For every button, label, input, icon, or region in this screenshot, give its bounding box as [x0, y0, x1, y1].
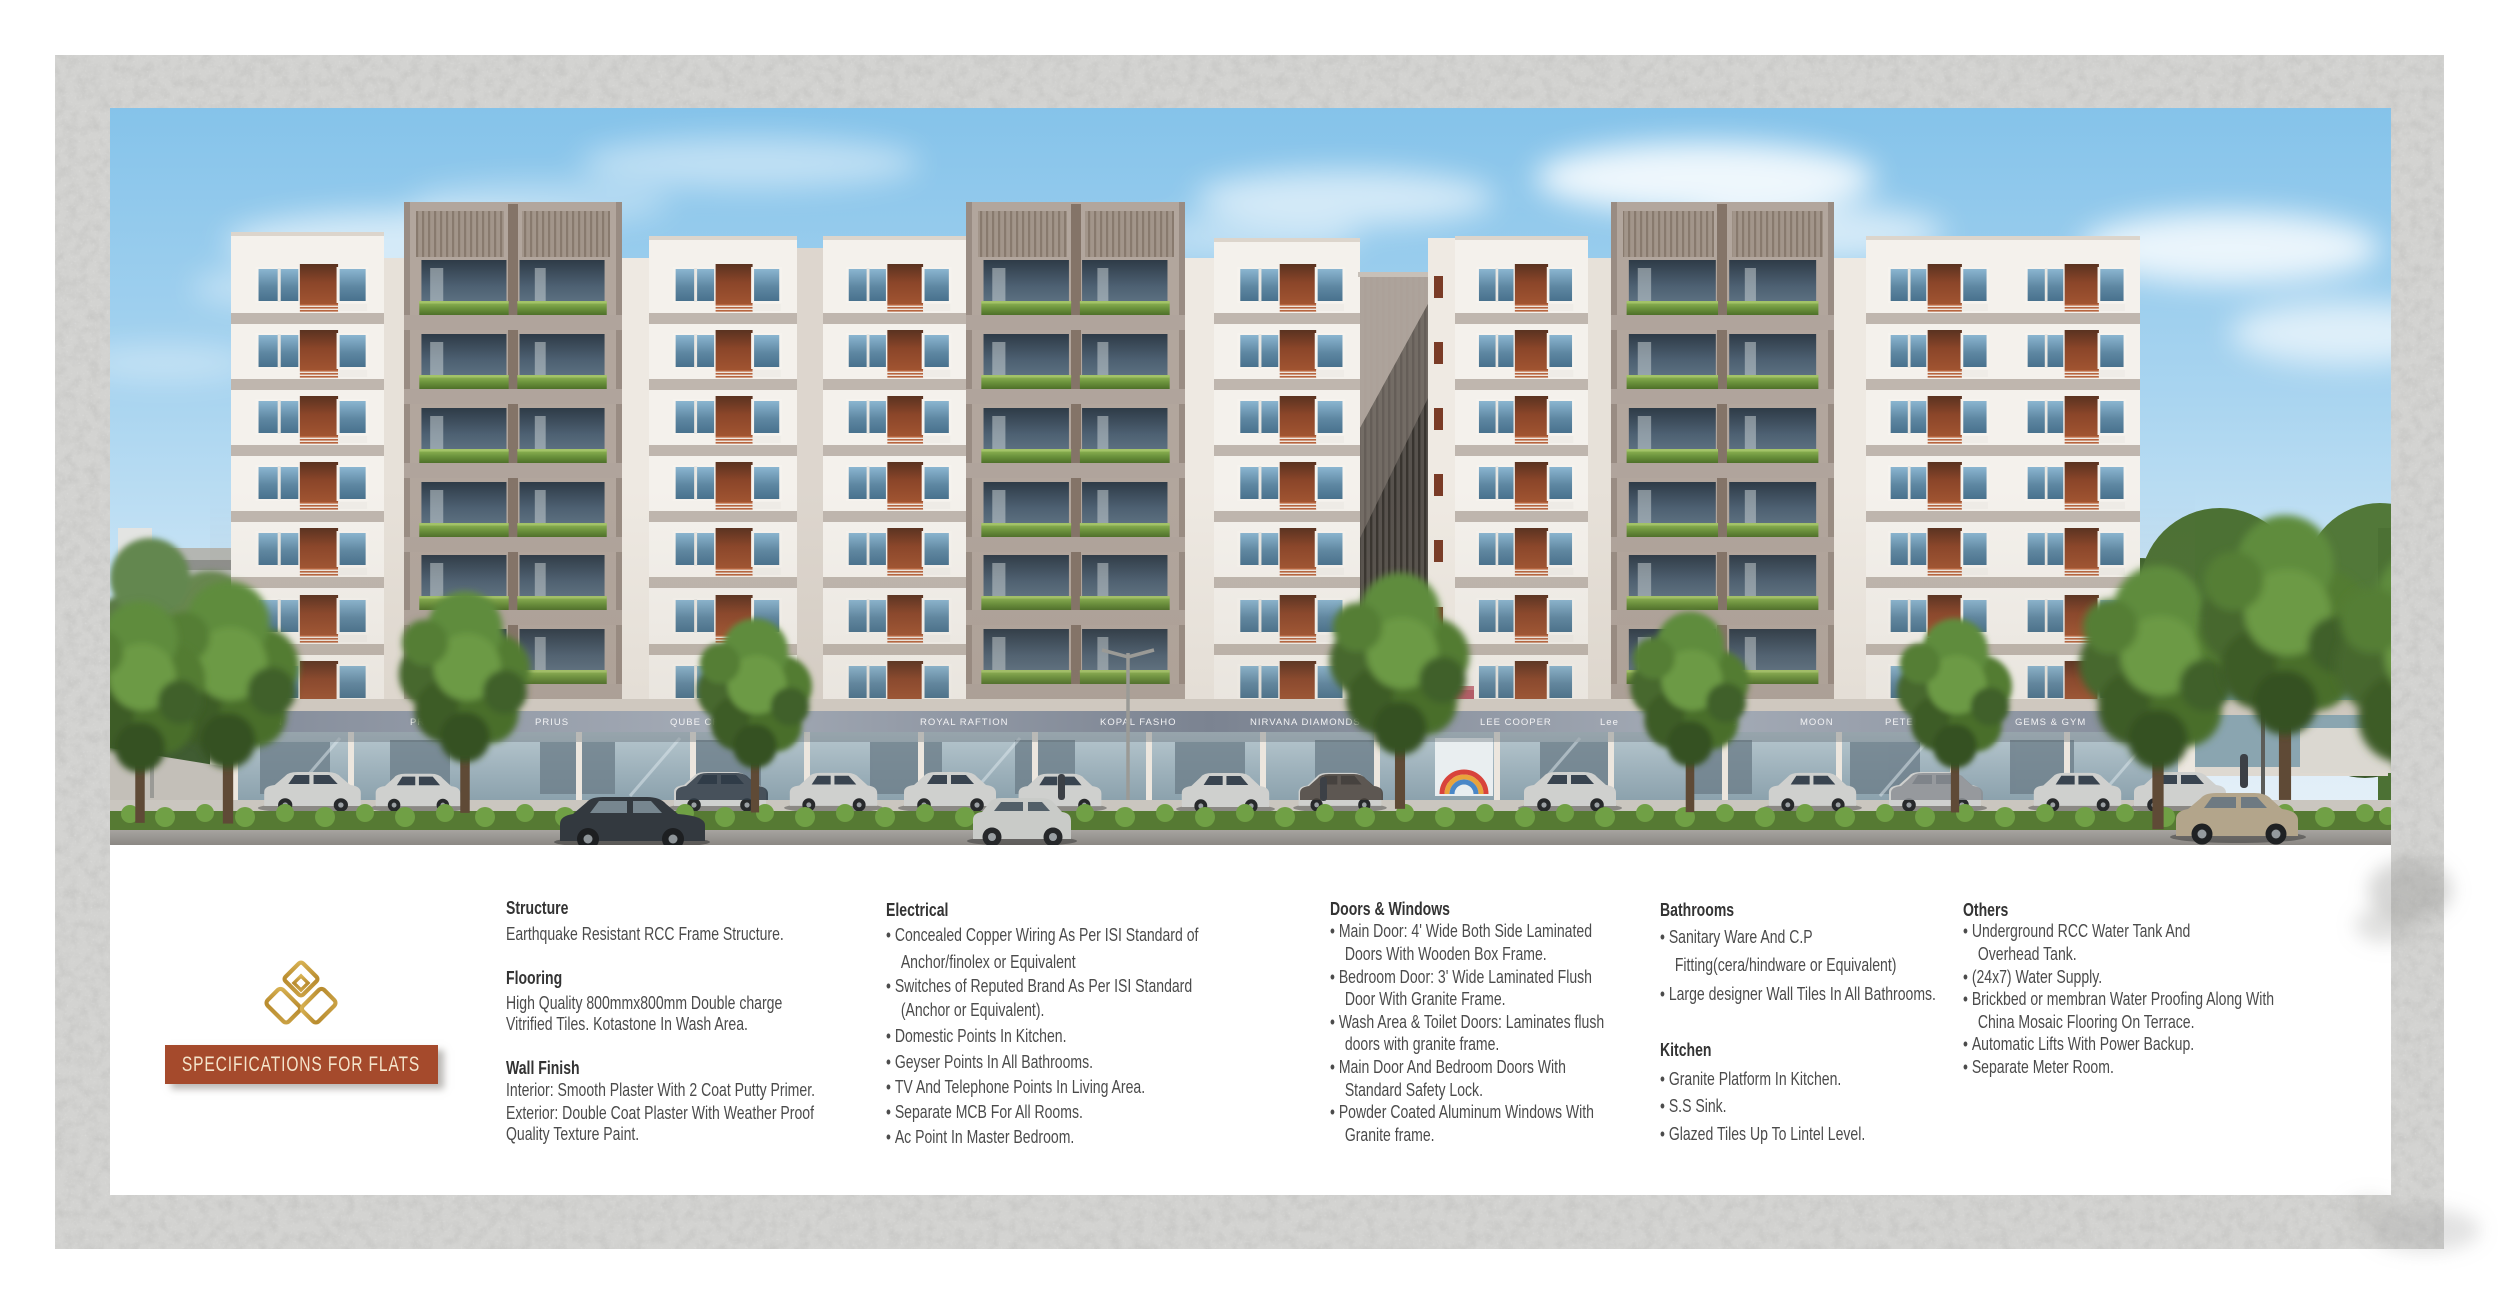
- svg-text:PRIUS: PRIUS: [535, 717, 569, 728]
- svg-text:LEE COOPER: LEE COOPER: [1480, 717, 1552, 728]
- svg-text:Lee: Lee: [1600, 717, 1619, 728]
- svg-text:NIRVANA DIAMONDS: NIRVANA DIAMONDS: [1250, 717, 1361, 728]
- svg-text:GEMS & GYM: GEMS & GYM: [2015, 717, 2086, 728]
- svg-text:ROYAL RAFTION: ROYAL RAFTION: [920, 717, 1008, 728]
- svg-text:MOON: MOON: [1800, 717, 1834, 728]
- svg-text:KOPAL FASHO: KOPAL FASHO: [1100, 717, 1176, 728]
